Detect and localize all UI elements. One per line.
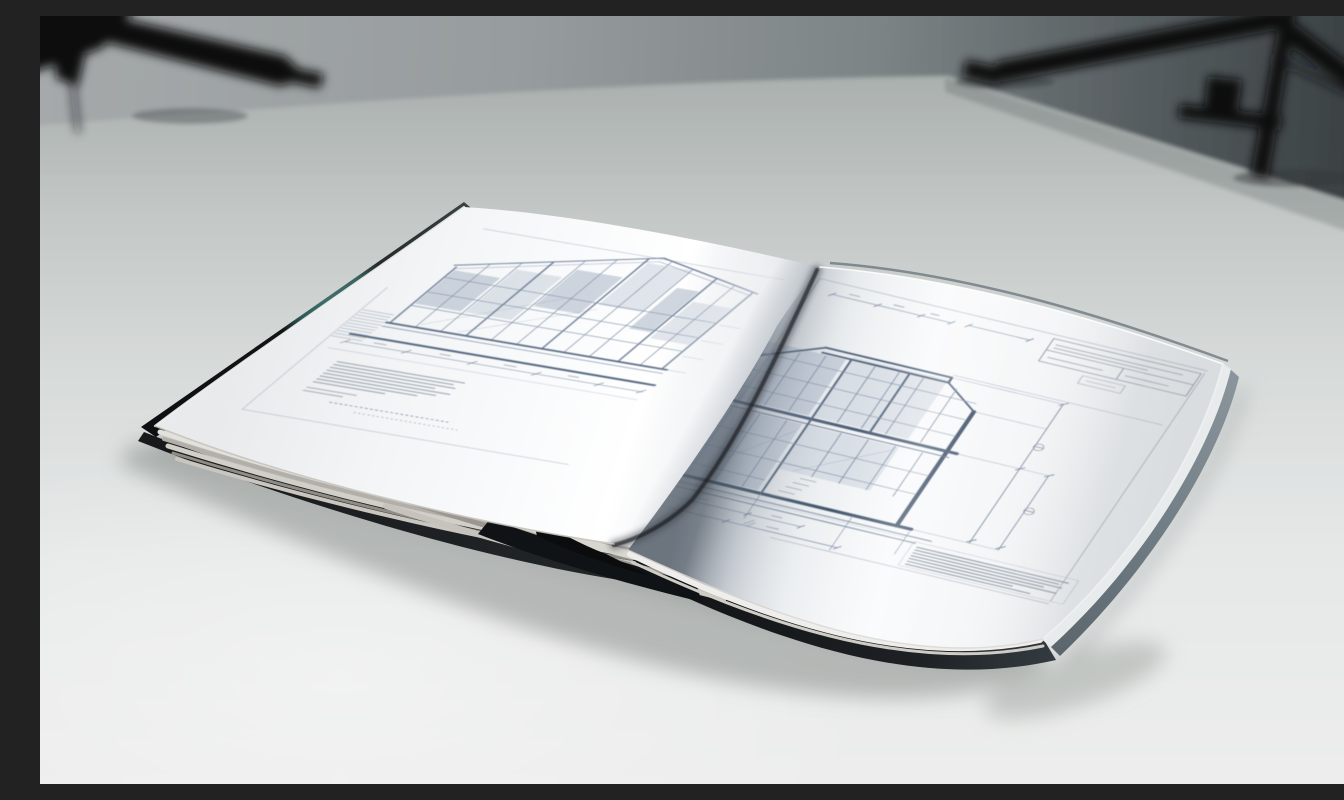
tripod-left-floor-shadow <box>132 108 248 124</box>
studio-photo-open-blueprint-book: Close-up studio photograph of an open ha… <box>40 16 1344 784</box>
photo-canvas <box>40 16 1344 784</box>
